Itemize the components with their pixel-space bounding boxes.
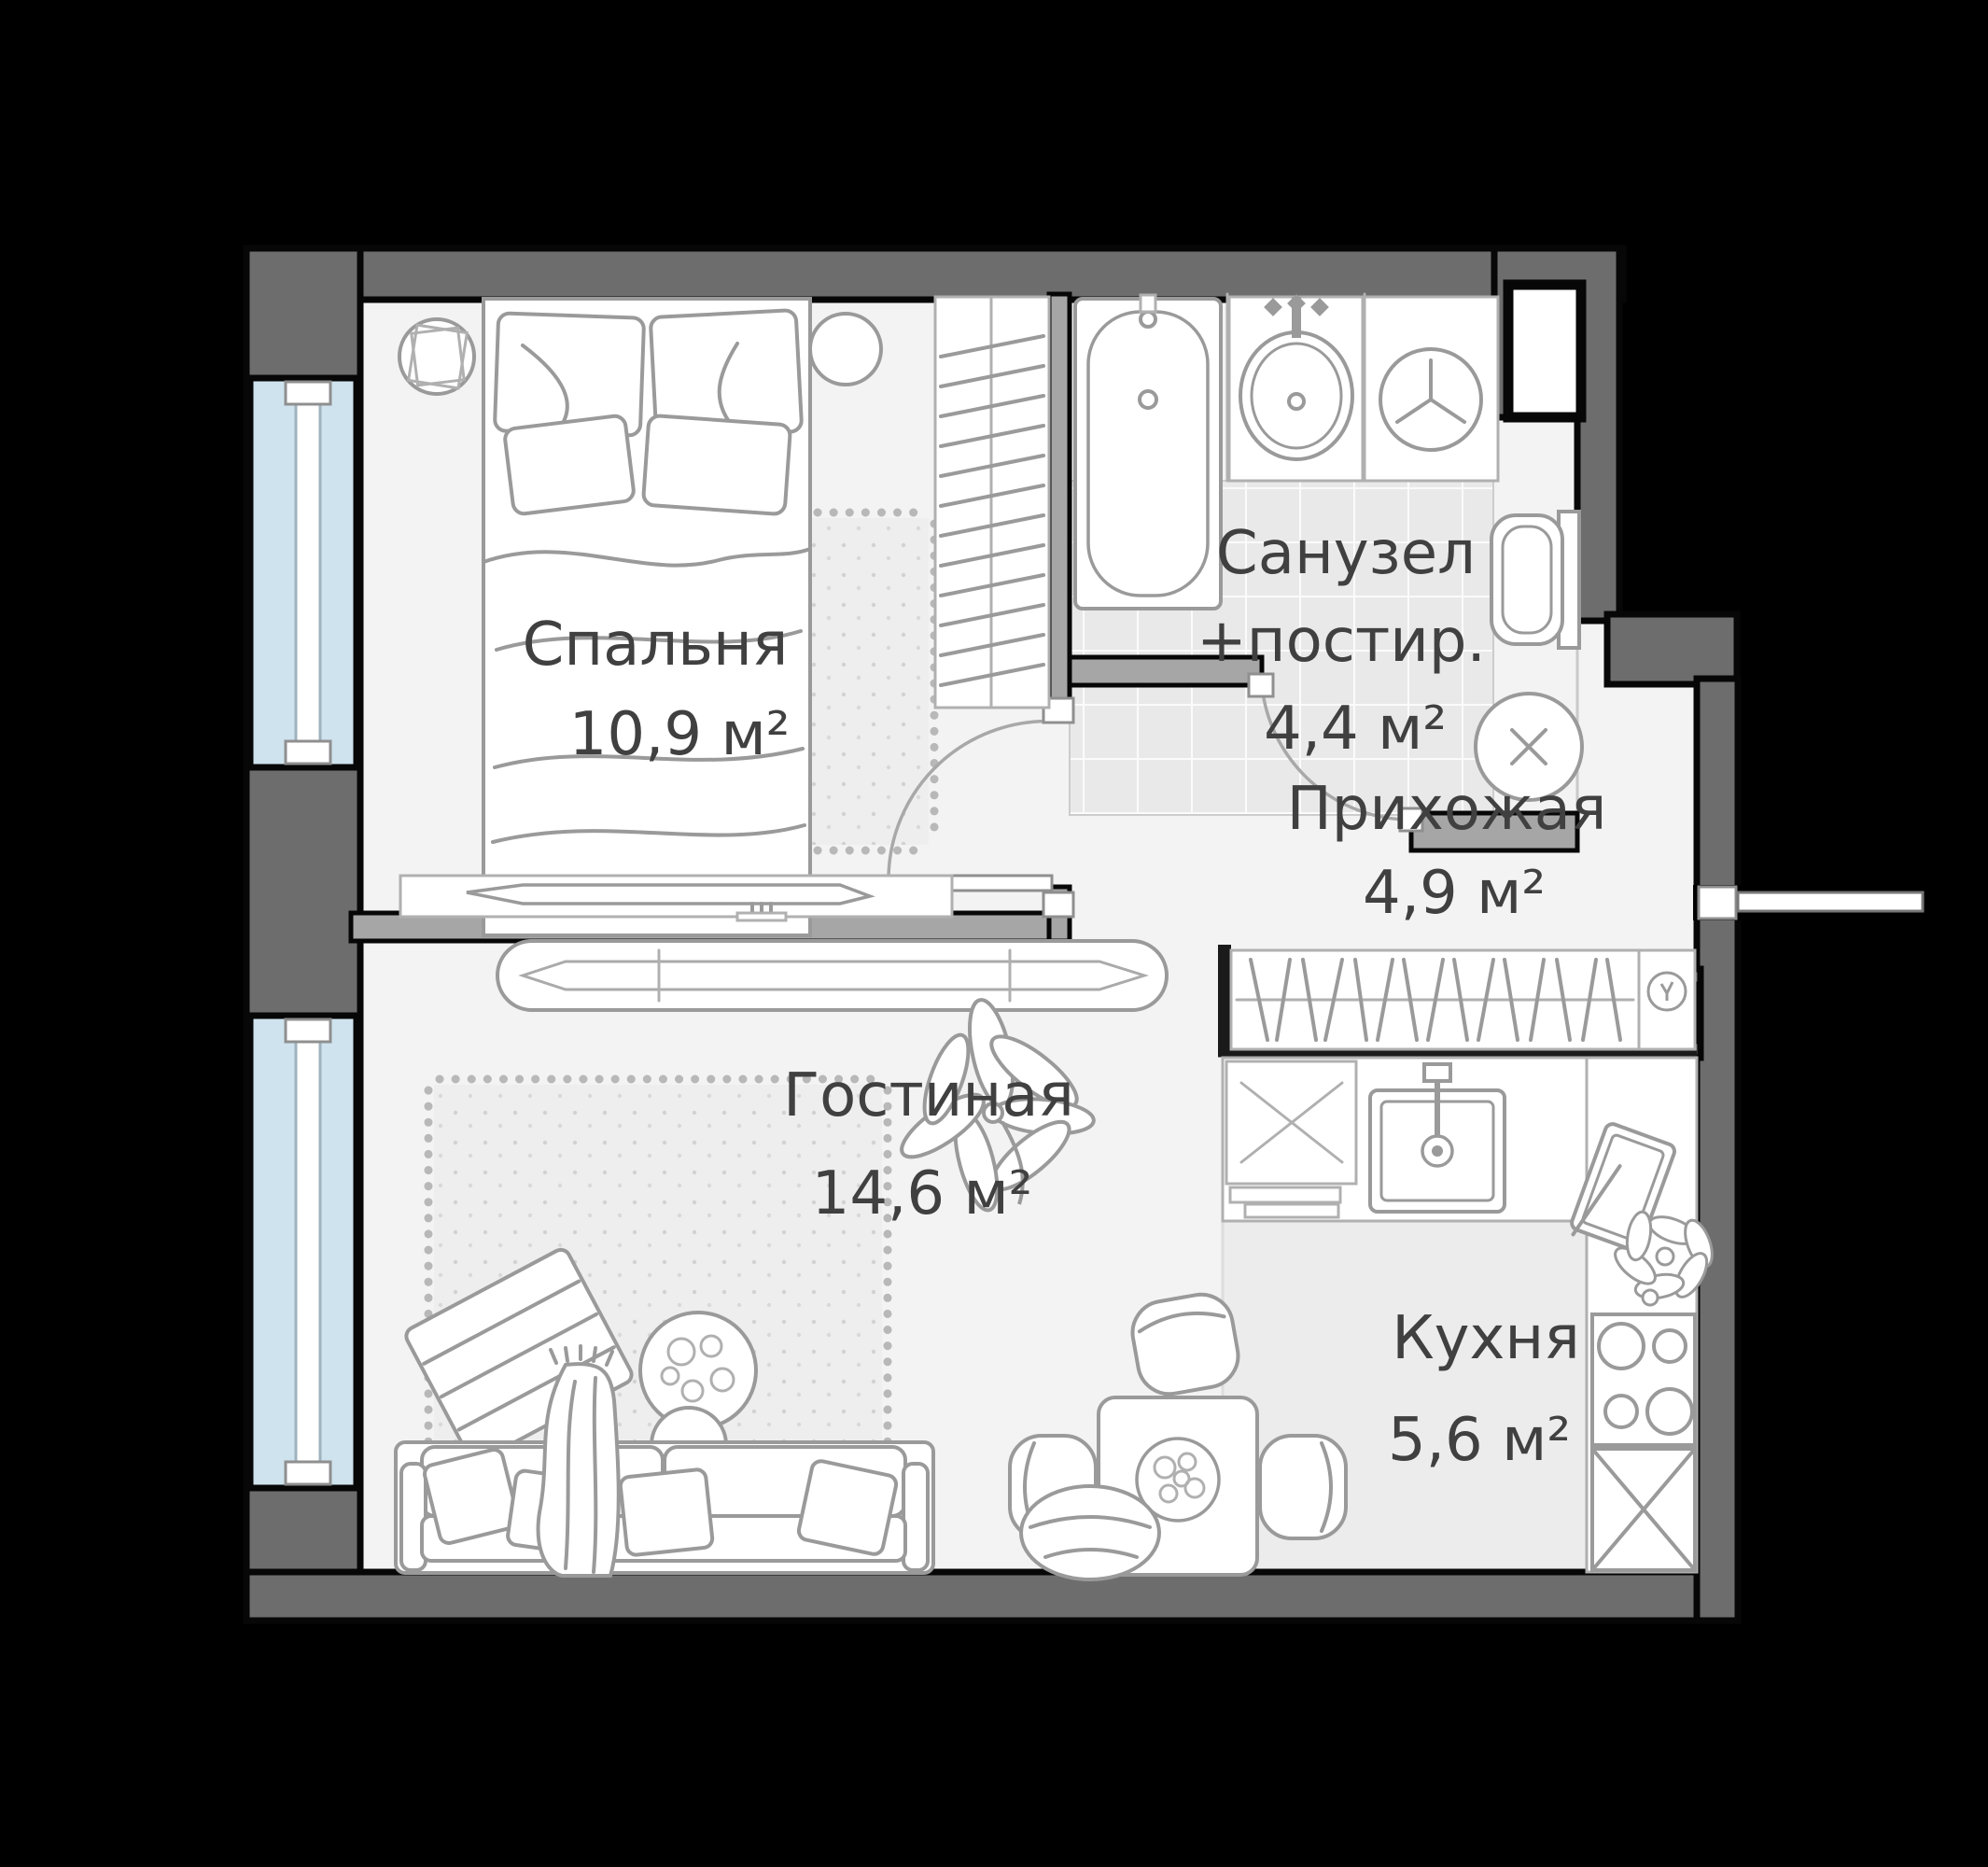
tv-cabinet [400,876,952,920]
label-hallway: Прихожая [1287,775,1607,844]
kitchen-cabinet-x [1592,1449,1695,1570]
floor-plan-canvas: Спальня 10,9 м² Санузел +постир. 4,4 м² … [0,0,1988,1867]
wall-right-lower [1697,679,1738,1621]
wall-bedroom-bathroom [1049,294,1070,719]
area-bedroom: 10,9 м² [569,700,791,769]
stove-icon [1592,1314,1695,1445]
door-entrance [1693,885,1923,920]
label-bedroom: Спальня [523,611,789,680]
pillow [504,414,635,514]
pillow [620,1468,713,1555]
outside-corner-mask [1617,243,1767,621]
label-kitchen: Кухня [1392,1304,1580,1373]
pillow [423,1448,520,1545]
coat-hook-icon [1648,973,1686,1010]
pillow [643,415,791,514]
area-living: 14,6 м² [812,1159,1033,1228]
label-bathroom-2: +постир. [1197,607,1486,676]
dining-chair [1127,1289,1243,1398]
media-console [497,941,1167,1010]
entrance-door-leaf [1738,892,1923,911]
window-living [250,1016,357,1488]
area-hallway: 4,9 м² [1363,859,1546,928]
shaft-niche-bathroom [1508,285,1581,417]
nightstand-left [399,319,474,394]
label-living: Гостиная [783,1061,1074,1130]
floor-plan: Спальня 10,9 м² Санузел +постир. 4,4 м² … [0,0,1988,1867]
pouf [1021,1486,1159,1579]
wall-top [246,248,1623,300]
bathroom-sink [1229,294,1363,481]
window-bedroom [250,378,357,767]
area-bathroom: 4,4 м² [1264,695,1447,764]
kitchen-unit-x [1226,1061,1356,1217]
wall-right-step [1607,614,1737,684]
hallway-wardrobe [1218,945,1695,1055]
tv-icon [467,885,870,904]
nightstand-right [810,314,881,385]
area-kitchen: 5,6 м² [1388,1406,1571,1475]
bathtub [1075,295,1221,609]
washing-machine-icon [1365,297,1498,481]
toilet [1491,512,1579,648]
label-bathroom: Санузел [1216,519,1476,588]
dining-chair [1260,1436,1346,1538]
wall-bottom [246,1572,1738,1621]
bedroom-closet [935,297,1049,708]
pillow [797,1459,898,1555]
